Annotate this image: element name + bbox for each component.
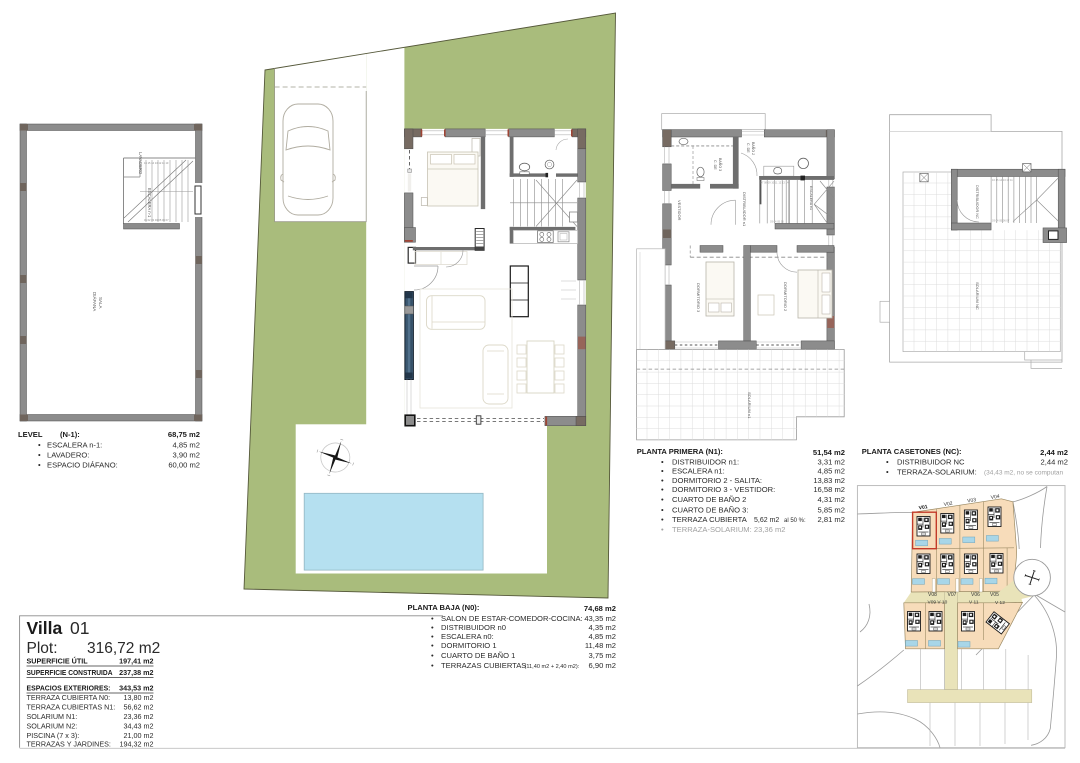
svg-text:13,80 m2: 13,80 m2: [124, 693, 154, 702]
svg-text:Villa: Villa: [27, 618, 63, 638]
svg-text:•: •: [431, 651, 434, 660]
svg-text:23,36 m2: 23,36 m2: [124, 712, 154, 721]
svg-text:3,75 m2: 3,75 m2: [589, 651, 616, 660]
svg-text:ESCALERA n1:: ESCALERA n1:: [672, 467, 725, 476]
svg-text:V 11: V 11: [969, 600, 979, 606]
svg-text:SOLARIUM NC: SOLARIUM NC: [975, 282, 980, 310]
svg-text:V07: V07: [948, 592, 957, 598]
svg-text:BAÑO 2: BAÑO 2: [751, 142, 756, 155]
svg-text:V08: V08: [928, 592, 937, 598]
svg-text:SOLARIUM N2:: SOLARIUM N2:: [27, 722, 78, 731]
svg-text:SUPERFICIE CONSTRUIDA: SUPERFICIE CONSTRUIDA: [27, 668, 113, 677]
svg-text:•: •: [431, 623, 434, 632]
svg-text:ESCALERA n-1: ESCALERA n-1: [147, 188, 152, 218]
svg-text:TERRAZA CUBIERTAS N1:: TERRAZA CUBIERTAS N1:: [27, 703, 116, 712]
svg-text:34,43 m2: 34,43 m2: [124, 722, 154, 731]
svg-text:01: 01: [70, 618, 89, 638]
svg-text:•: •: [661, 467, 664, 476]
svg-text:•: •: [431, 632, 434, 641]
svg-text:•: •: [661, 485, 664, 494]
svg-text:74,68 m2: 74,68 m2: [584, 604, 616, 613]
svg-text:237,38 m2: 237,38 m2: [119, 668, 153, 677]
svg-text:2,81 m2: 2,81 m2: [818, 515, 845, 524]
svg-text:•: •: [661, 525, 664, 534]
svg-text:ESCALERA n0:: ESCALERA n0:: [441, 632, 494, 641]
svg-text:4,35 m2: 4,35 m2: [589, 623, 616, 632]
svg-text:ESCALERA n-1:: ESCALERA n-1:: [47, 441, 102, 450]
svg-text:56,62 m2: 56,62 m2: [124, 703, 154, 712]
svg-text:DORMITORIO 2 - SALITA:: DORMITORIO 2 - SALITA:: [672, 476, 762, 485]
svg-text:DORMITORIO 2: DORMITORIO 2: [783, 282, 788, 312]
svg-text:•: •: [38, 441, 41, 450]
svg-text:LAVADERO: LAVADERO: [138, 152, 143, 175]
svg-text:03 04 05 06: 03 04 05 06: [770, 219, 784, 223]
svg-text:al 50 %:: al 50 %:: [784, 518, 806, 524]
svg-text:V 12: V 12: [995, 600, 1005, 606]
svg-text:DISTRIBUIDOR n0: DISTRIBUIDOR n0: [441, 623, 506, 632]
svg-text:V05: V05: [990, 592, 999, 598]
svg-text:SOLARIUM n1: SOLARIUM n1: [747, 392, 752, 419]
svg-text:SALON DE ESTAR-COMEDOR-COCINA:: SALON DE ESTAR-COMEDOR-COCINA:: [441, 614, 583, 623]
svg-text:•: •: [661, 458, 664, 467]
svg-text:343,53 m2: 343,53 m2: [119, 684, 153, 693]
svg-text:07 08 09 10 11 12 13 14: 07 08 09 10 11 12 13 14: [761, 181, 789, 185]
svg-text:DISTRIBUIDOR n1: DISTRIBUIDOR n1: [742, 192, 747, 227]
svg-text:DORMITORIO 1: DORMITORIO 1: [441, 641, 497, 650]
svg-text:C. DE: C. DE: [746, 143, 750, 153]
svg-text:•: •: [38, 451, 41, 460]
svg-text:LEVEL: LEVEL: [18, 430, 43, 439]
svg-text:197,41 m2: 197,41 m2: [119, 657, 153, 666]
svg-text:•: •: [661, 476, 664, 485]
svg-text:•: •: [431, 661, 434, 670]
svg-text:5,62 m2: 5,62 m2: [754, 517, 779, 524]
svg-text:•: •: [661, 506, 664, 515]
svg-text:194,32 m2: 194,32 m2: [120, 740, 154, 749]
svg-text:ESPACIOS EXTERIORES:: ESPACIOS EXTERIORES:: [27, 684, 111, 693]
svg-text:TERRAZA CUBIERTA N0:: TERRAZA CUBIERTA N0:: [27, 693, 111, 702]
svg-text:BAÑO 3: BAÑO 3: [718, 158, 723, 171]
svg-text:PLANTA PRIMERA (N1):: PLANTA PRIMERA (N1):: [637, 447, 723, 456]
svg-text:03 04 05 06 07: 03 04 05 06 07: [992, 218, 1010, 222]
svg-text:DISTRIBUIDOR NC: DISTRIBUIDOR NC: [897, 458, 965, 467]
svg-text:PLANTA CASETONES (NC):: PLANTA CASETONES (NC):: [862, 447, 962, 456]
svg-text:TERRAZAS CUBIERTAS: TERRAZAS CUBIERTAS: [441, 661, 526, 670]
svg-text:CUARTO DE BAÑO 3:: CUARTO DE BAÑO 3:: [672, 506, 749, 515]
svg-text:4,85 m2: 4,85 m2: [818, 467, 845, 476]
svg-text:CUARTO DE BAÑO 2: CUARTO DE BAÑO 2: [672, 495, 746, 504]
svg-text:DORMITORIO 3: DORMITORIO 3: [696, 283, 701, 313]
svg-text:DISTRIBUIDOR n1:: DISTRIBUIDOR n1:: [672, 458, 739, 467]
svg-text:16 15 14 13 12 11: 16 15 14 13 12 11: [992, 178, 1013, 182]
svg-text:13,83 m2: 13,83 m2: [813, 476, 845, 485]
svg-text:51,54 m2: 51,54 m2: [813, 448, 845, 457]
svg-text:16,58 m2: 16,58 m2: [813, 485, 845, 494]
svg-text:5,85 m2: 5,85 m2: [818, 506, 845, 515]
svg-text:VESTIDOR: VESTIDOR: [677, 200, 682, 221]
svg-text:TERRAZA-SOLARIUM: 23,36 m2: TERRAZA-SOLARIUM: 23,36 m2: [672, 525, 786, 534]
svg-text:(11,40 m2 + 2,40 m2):: (11,40 m2 + 2,40 m2):: [525, 664, 580, 670]
svg-text:11,48 m2: 11,48 m2: [585, 641, 616, 650]
svg-text:TERRAZAS Y JARDINES:: TERRAZAS Y JARDINES:: [27, 740, 111, 749]
svg-text:SOLARIUM N1:: SOLARIUM N1:: [27, 712, 78, 721]
svg-text:43,35 m2: 43,35 m2: [584, 614, 616, 623]
svg-text:•: •: [886, 458, 889, 467]
svg-text:4,31 m2: 4,31 m2: [818, 495, 845, 504]
svg-text:3,90 m2: 3,90 m2: [173, 451, 200, 460]
svg-text:•: •: [661, 515, 664, 524]
svg-text:SUPERFICIE ÚTIL: SUPERFICIE ÚTIL: [27, 657, 89, 666]
svg-text:16 15 14 13 12 11 10: 16 15 14 13 12 11 10: [144, 161, 169, 165]
svg-text:LAVADERO:: LAVADERO:: [47, 451, 89, 460]
svg-text:(34,43 m2, no se computan: (34,43 m2, no se computan: [984, 470, 1064, 477]
svg-text:2,44 m2: 2,44 m2: [1041, 458, 1068, 467]
svg-text:2,44 m2: 2,44 m2: [1040, 448, 1068, 457]
svg-text:316,72 m2: 316,72 m2: [87, 640, 160, 657]
svg-text:V09 V 10: V09 V 10: [928, 600, 948, 606]
svg-text:60,00 m2: 60,00 m2: [168, 461, 200, 470]
svg-text:PLANTA BAJA (N0):: PLANTA BAJA (N0):: [408, 603, 480, 612]
svg-text:C. DE: C. DE: [713, 160, 717, 170]
svg-text:DORMITORIO 3 - VESTIDOR:: DORMITORIO 3 - VESTIDOR:: [672, 485, 775, 494]
svg-text:ESPACIO DIÁFANO:: ESPACIO DIÁFANO:: [47, 461, 118, 470]
svg-text:TERRAZA CUBIERTA: TERRAZA CUBIERTA: [672, 515, 748, 524]
svg-text:3,31 m2: 3,31 m2: [818, 458, 845, 467]
svg-text:SALA: SALA: [98, 297, 103, 309]
svg-text:01 02 03 04 05 06 07: 01 02 03 04 05 06 07: [144, 218, 169, 222]
svg-text:68,75 m2: 68,75 m2: [168, 430, 200, 439]
svg-text:6,90 m2: 6,90 m2: [589, 661, 616, 670]
svg-text:•: •: [661, 495, 664, 504]
svg-text:ESCALERA n1: ESCALERA n1: [809, 186, 813, 210]
svg-text:DIÁFANA: DIÁFANA: [92, 292, 98, 311]
svg-text:4,85 m2: 4,85 m2: [173, 441, 200, 450]
svg-text:V06: V06: [971, 592, 980, 598]
svg-text:(N-1):: (N-1):: [60, 430, 80, 439]
svg-text:•: •: [38, 461, 41, 470]
svg-text:4,85 m2: 4,85 m2: [589, 632, 616, 641]
svg-text:TERRAZA-SOLARIUM:: TERRAZA-SOLARIUM:: [897, 468, 977, 477]
svg-text:•: •: [431, 641, 434, 650]
svg-text:CUARTO DE BAÑO 1: CUARTO DE BAÑO 1: [441, 651, 515, 660]
svg-text:Plot:: Plot:: [27, 640, 58, 657]
svg-text:DISTRIBUIDOR NC: DISTRIBUIDOR NC: [975, 185, 979, 219]
svg-text:•: •: [886, 468, 889, 477]
